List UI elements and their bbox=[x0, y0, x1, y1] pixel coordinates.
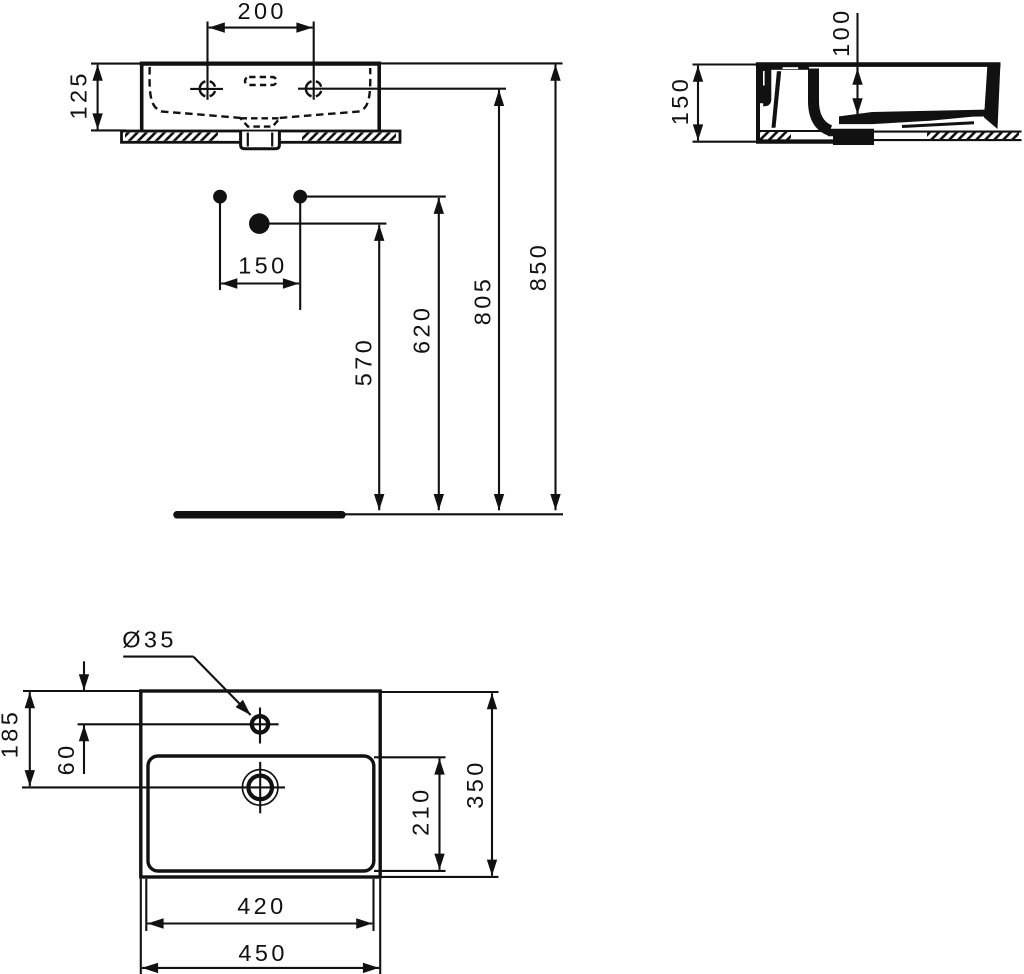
svg-text:850: 850 bbox=[525, 242, 551, 291]
svg-text:350: 350 bbox=[462, 759, 488, 808]
svg-text:185: 185 bbox=[0, 709, 23, 758]
svg-text:Ø35: Ø35 bbox=[122, 627, 177, 653]
svg-text:420: 420 bbox=[237, 893, 286, 919]
svg-text:200: 200 bbox=[237, 0, 286, 24]
svg-text:805: 805 bbox=[469, 276, 495, 325]
svg-text:570: 570 bbox=[351, 337, 377, 386]
svg-text:620: 620 bbox=[408, 305, 434, 354]
svg-text:210: 210 bbox=[407, 786, 433, 835]
svg-text:125: 125 bbox=[66, 70, 92, 119]
svg-text:100: 100 bbox=[828, 7, 854, 56]
svg-text:450: 450 bbox=[238, 940, 287, 966]
svg-text:150: 150 bbox=[667, 76, 693, 125]
svg-text:60: 60 bbox=[53, 742, 79, 775]
svg-text:150: 150 bbox=[238, 253, 287, 279]
